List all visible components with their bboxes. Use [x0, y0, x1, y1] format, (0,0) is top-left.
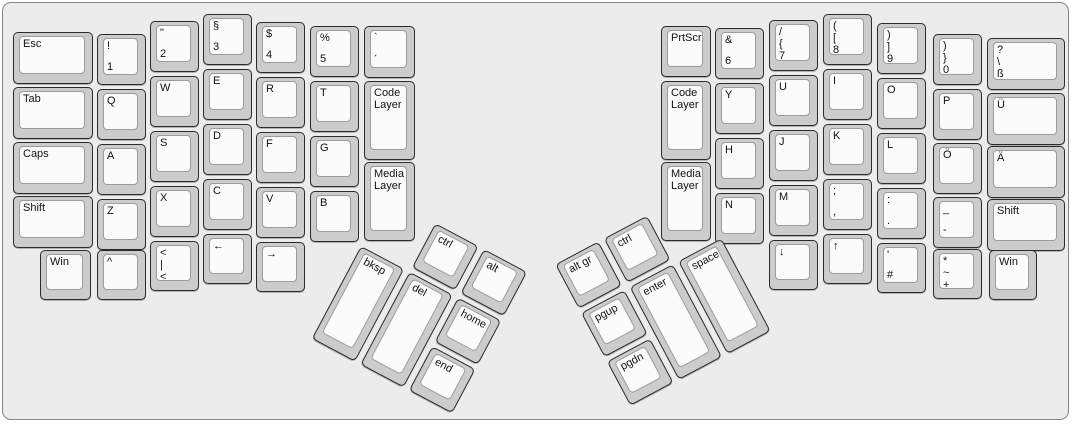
keycap-top: F [262, 136, 297, 173]
key-1[interactable]: !1 [97, 34, 146, 85]
key-legend: Code Layer [671, 87, 699, 111]
key-legend: Ü [997, 99, 1053, 111]
key-legend: # [887, 269, 914, 281]
key-legend: alt [484, 259, 513, 282]
key-8[interactable]: ([8 [823, 14, 872, 65]
key-legend: - [943, 224, 970, 236]
keycap-top: ↓ [775, 244, 810, 280]
keycap-top: alt gr [562, 249, 610, 297]
key-legend: { [779, 38, 806, 50]
key-legend: W [160, 82, 187, 94]
key-legend: Media Layer [671, 168, 699, 192]
key-legend: : [887, 194, 914, 206]
key-legend: ← [213, 240, 240, 252]
keycap-top: T [316, 85, 351, 122]
key-5[interactable]: %5 [310, 26, 359, 77]
key-question-eszett[interactable]: ?\ß [987, 38, 1065, 90]
key-legend: 8 [833, 44, 860, 56]
key-esc[interactable]: Esc [13, 32, 93, 84]
key-win-left[interactable]: Win [40, 250, 91, 300]
key-legend: ) [943, 40, 970, 52]
key-legend: Z [107, 205, 134, 217]
key-legend: 7 [779, 50, 806, 62]
keycap-top: L [883, 137, 918, 174]
keycap-top: P [939, 93, 974, 130]
key-shift-right[interactable]: Shift [987, 199, 1065, 251]
key-legend: ! [107, 40, 134, 52]
key-legend: $ [266, 28, 293, 40]
key-arrow-left[interactable]: ← [203, 234, 252, 284]
keycap-top: )}0 [939, 38, 974, 75]
keycap-top: Code Layer [370, 85, 407, 150]
key-code-layer-right[interactable]: Code Layer [661, 81, 711, 160]
key-legend: 4 [266, 49, 293, 61]
key-legend: Q [107, 95, 134, 107]
keycap-top: E [209, 73, 244, 110]
key-t[interactable]: T [310, 81, 359, 132]
key-legend: ´ [374, 54, 403, 66]
key-legend: ~ [943, 267, 970, 279]
key-legend: ) [887, 29, 914, 41]
key-m[interactable]: M [769, 185, 818, 236]
key-legend: pgup [593, 301, 622, 324]
key-less-pipe[interactable]: <|< [150, 241, 199, 291]
key-legend: 1 [107, 61, 134, 73]
key-x[interactable]: X [150, 186, 199, 237]
key-caret[interactable]: ^ [97, 250, 146, 300]
keycap-top: ↑ [829, 238, 864, 274]
key-media-layer-left[interactable]: Media Layer [364, 162, 415, 241]
key-legend: Y [725, 89, 752, 101]
key-legend: / [779, 26, 806, 38]
keycap-top: :. [883, 192, 918, 229]
key-r[interactable]: R [256, 77, 305, 128]
key-legend: \ [997, 56, 1053, 68]
key-u[interactable]: U [769, 75, 818, 126]
key-legend: 9 [887, 53, 914, 65]
key-legend: § [213, 20, 240, 32]
key-w[interactable]: W [150, 76, 199, 127]
key-legend: Caps [23, 148, 81, 160]
keycap-top: U [775, 79, 810, 116]
keycap-top: pgdn [614, 346, 662, 394]
keycap-top: D [209, 128, 244, 165]
keycap-top: ;, [829, 183, 864, 220]
key-g[interactable]: G [310, 136, 359, 187]
key-legend: enter [641, 275, 670, 298]
keycap-top: alt [470, 255, 518, 303]
key-legend: Win [50, 256, 79, 268]
key-legend: bksp [361, 256, 390, 279]
key-legend: & [725, 34, 752, 46]
key-4[interactable]: $4 [256, 22, 305, 73]
key-legend: F [266, 138, 293, 150]
key-legend: % [320, 32, 347, 44]
keycap-top: &6 [721, 32, 756, 69]
keycap-top: Y [721, 87, 756, 124]
key-l[interactable]: L [877, 133, 926, 184]
key-legend: end [433, 356, 462, 379]
keycap-top: X [156, 190, 191, 227]
key-legend: Ö [943, 149, 970, 161]
keycap-top: _- [939, 201, 974, 238]
key-9[interactable]: )]9 [877, 23, 926, 74]
keycap-top: → [262, 246, 297, 282]
key-legend: ↓ [779, 246, 806, 258]
key-legend: Tab [23, 93, 81, 105]
key-legend: M [779, 191, 806, 203]
key-legend: home [459, 308, 488, 331]
key-legend: L [887, 139, 914, 151]
keycap-top: ?\ß [993, 42, 1057, 80]
keycap-top: Esc [19, 36, 85, 74]
key-legend: _ [943, 203, 970, 215]
keycap-top: /{7 [775, 24, 810, 61]
keycap-top: Shift [19, 200, 85, 238]
key-legend: B [320, 197, 347, 209]
key-b[interactable]: B [310, 191, 359, 242]
key-legend: 5 [320, 53, 347, 65]
keycap-top: G [316, 140, 351, 177]
key-legend: ? [997, 44, 1053, 56]
keycap-top: C [209, 183, 244, 220]
key-legend: | [160, 259, 187, 271]
key-legend: R [266, 83, 293, 95]
key-legend: ] [887, 41, 914, 53]
key-legend: ctrl [436, 233, 465, 256]
keycap-top: Win [46, 254, 83, 290]
keycap-top: Q [103, 93, 138, 130]
keycap-top: `´ [370, 30, 407, 68]
key-shift-left[interactable]: Shift [13, 196, 93, 248]
keycap-top: PrtScr [667, 30, 703, 67]
key-asterisk-tilde-plus[interactable]: *~+ [933, 249, 982, 299]
keycap-top: !1 [103, 38, 138, 75]
key-h[interactable]: H [715, 138, 764, 189]
keycap-top: ^ [103, 254, 138, 290]
keyboard-layout-screenshot: EscTabCapsShiftWin!1QAZ^"2WSX<|<§3EDC←$4… [0, 0, 1073, 424]
key-7[interactable]: /{7 [769, 20, 818, 71]
key-s[interactable]: S [150, 131, 199, 182]
key-quote-hash[interactable]: '# [877, 243, 926, 293]
key-legend: ^ [107, 256, 134, 268]
keycap-top: end [419, 353, 467, 401]
key-legend: N [725, 199, 752, 211]
keycap-top: Ö [939, 147, 974, 184]
keycap-top: Z [103, 203, 138, 240]
keycap-top: W [156, 80, 191, 117]
keycap-top: Ä [993, 150, 1057, 188]
key-legend: Ä [997, 152, 1053, 164]
key-legend: O [887, 84, 914, 96]
key-o-umlaut[interactable]: Ö [933, 143, 982, 194]
key-grave-acute[interactable]: `´ [364, 26, 415, 78]
keycap-top: S [156, 135, 191, 172]
key-legend: ` [374, 32, 403, 44]
keycap-top: home [445, 304, 493, 352]
key-legend: Shift [23, 202, 81, 214]
key-legend: space [690, 249, 719, 272]
key-underscore-hyphen[interactable]: _- [933, 197, 982, 248]
keycap-top: R [262, 81, 297, 118]
key-legend: 3 [213, 41, 240, 53]
key-2[interactable]: "2 [150, 21, 199, 72]
keycap-top: pgup [588, 297, 636, 345]
key-j[interactable]: J [769, 130, 818, 181]
key-legend: ctrl [615, 227, 644, 250]
key-legend: Code Layer [374, 87, 403, 111]
key-legend: * [943, 255, 970, 267]
key-legend: G [320, 142, 347, 154]
key-arrow-down[interactable]: ↓ [769, 240, 818, 290]
key-legend: < [160, 271, 187, 283]
keycap-top: O [883, 82, 918, 119]
key-u-umlaut[interactable]: Ü [987, 93, 1065, 145]
key-q[interactable]: Q [97, 89, 146, 140]
keycap-top: Ü [993, 97, 1057, 135]
key-legend: K [833, 130, 860, 142]
key-legend: PrtScr [671, 32, 699, 44]
key-o[interactable]: O [877, 78, 926, 129]
keycap-top: Win [995, 254, 1029, 290]
keycap-top: Shift [993, 203, 1057, 241]
key-e[interactable]: E [203, 69, 252, 120]
key-legend: , [833, 206, 860, 218]
key-legend: ' [887, 249, 914, 261]
key-prtscr[interactable]: PrtScr [661, 26, 711, 77]
keycap-top: N [721, 197, 756, 234]
key-legend: alt gr [567, 252, 596, 275]
keycap-top: B [316, 195, 351, 232]
keycap-top: ctrl [611, 223, 659, 271]
keycap-top: )]9 [883, 27, 918, 64]
key-n[interactable]: N [715, 193, 764, 244]
key-legend: D [213, 130, 240, 142]
key-y[interactable]: Y [715, 83, 764, 134]
keycap-top: A [103, 148, 138, 185]
key-legend: del [410, 282, 439, 305]
key-legend: " [160, 27, 187, 39]
keycap-top: Code Layer [667, 85, 703, 150]
keycap-top: K [829, 128, 864, 165]
key-legend: H [725, 144, 752, 156]
keycap-top: $4 [262, 26, 297, 63]
key-legend: < [160, 247, 187, 259]
key-legend: U [779, 81, 806, 93]
key-legend: → [266, 248, 293, 260]
key-a-umlaut[interactable]: Ä [987, 146, 1065, 198]
keycap-top: '# [883, 247, 918, 283]
keycap-top: Media Layer [370, 166, 407, 231]
key-legend: } [943, 52, 970, 64]
keycap-top: V [262, 191, 297, 228]
key-arrow-up[interactable]: ↑ [823, 234, 872, 284]
key-k[interactable]: K [823, 124, 872, 175]
keycap-top: I [829, 73, 864, 110]
key-c[interactable]: C [203, 179, 252, 230]
key-legend: Esc [23, 38, 81, 50]
keycap-top: Tab [19, 91, 85, 129]
keycap-top: *~+ [939, 253, 974, 289]
key-legend: ↑ [833, 240, 860, 252]
key-legend: 0 [943, 64, 970, 76]
key-legend: E [213, 75, 240, 87]
key-legend: A [107, 150, 134, 162]
keycap-top: H [721, 142, 756, 179]
key-legend: ; [833, 185, 860, 197]
key-legend: Media Layer [374, 168, 403, 192]
keycap-top: ([8 [829, 18, 864, 55]
key-legend: Win [999, 256, 1025, 268]
key-legend: ( [833, 20, 860, 32]
key-p[interactable]: P [933, 89, 982, 140]
key-legend: 2 [160, 48, 187, 60]
key-legend: T [320, 87, 347, 99]
key-media-layer-right[interactable]: Media Layer [661, 162, 711, 241]
key-legend: pgdn [618, 349, 647, 372]
key-legend: J [779, 136, 806, 148]
keycap-top: §3 [209, 18, 244, 55]
keycap-top: Media Layer [667, 166, 703, 231]
key-d[interactable]: D [203, 124, 252, 175]
key-f[interactable]: F [256, 132, 305, 183]
key-legend: I [833, 75, 860, 87]
key-tab[interactable]: Tab [13, 87, 93, 139]
key-a[interactable]: A [97, 144, 146, 195]
key-z[interactable]: Z [97, 199, 146, 250]
key-code-layer-left[interactable]: Code Layer [364, 81, 415, 160]
keycap-top: ← [209, 238, 244, 274]
keycap-top: M [775, 189, 810, 226]
key-win-right[interactable]: Win [989, 250, 1037, 300]
key-caps[interactable]: Caps [13, 142, 93, 194]
key-legend: ß [997, 68, 1053, 80]
keycap-top: ctrl [422, 230, 470, 278]
keycap-top: Caps [19, 146, 85, 184]
key-i[interactable]: I [823, 69, 872, 120]
key-legend: [ [833, 32, 860, 44]
key-legend: X [160, 192, 187, 204]
key-arrow-right[interactable]: → [256, 242, 305, 292]
keycap-top: %5 [316, 30, 351, 67]
key-legend: Shift [997, 205, 1053, 217]
key-legend: C [213, 185, 240, 197]
key-legend: 6 [725, 55, 752, 67]
keycap-top: <|< [156, 245, 191, 281]
key-legend: V [266, 193, 293, 205]
key-legend: + [943, 279, 970, 291]
key-colon-period[interactable]: :. [877, 188, 926, 239]
key-0[interactable]: )}0 [933, 34, 982, 85]
key-6[interactable]: &6 [715, 28, 764, 79]
key-legend: S [160, 137, 187, 149]
key-legend: . [887, 215, 914, 227]
key-legend: P [943, 95, 970, 107]
keycap-top: "2 [156, 25, 191, 62]
key-v[interactable]: V [256, 187, 305, 238]
key-3[interactable]: §3 [203, 14, 252, 65]
keyboard-layout-canvas: EscTabCapsShiftWin!1QAZ^"2WSX<|<§3EDC←$4… [2, 2, 1069, 420]
key-semicolon-comma[interactable]: ;, [823, 179, 872, 230]
keycap-top: J [775, 134, 810, 171]
